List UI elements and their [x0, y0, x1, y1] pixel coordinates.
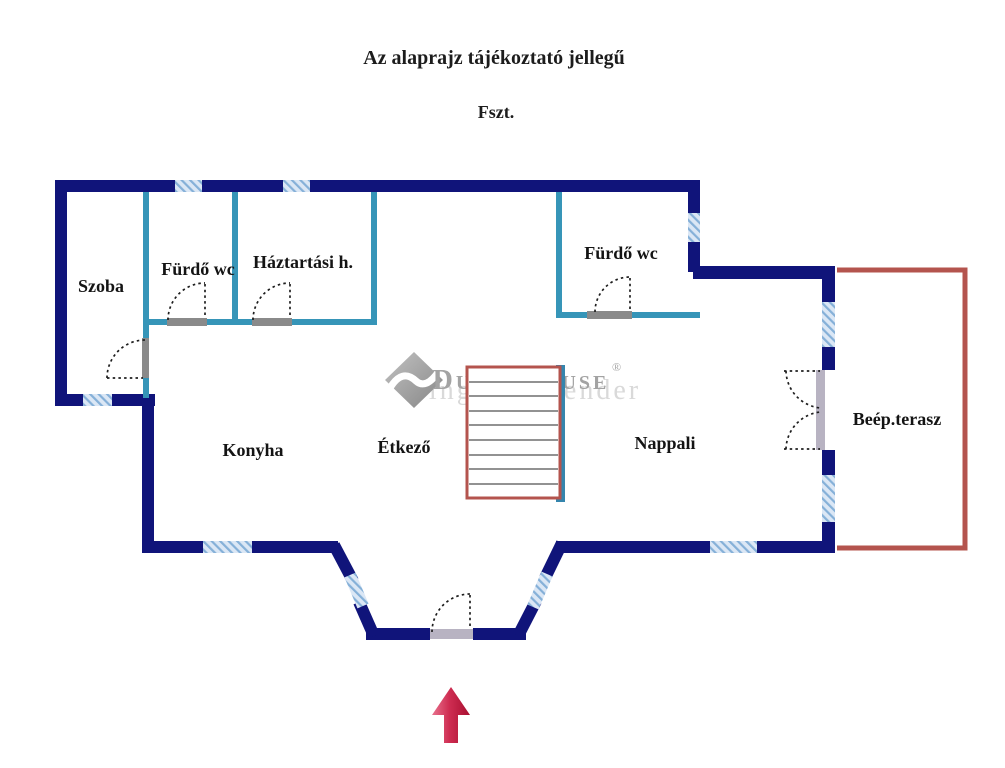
- wall-bottom-left-1: [142, 541, 203, 553]
- furdo-right-door: [595, 277, 630, 312]
- wall-diag-left-b: [359, 602, 374, 636]
- window-nappali-bottom: [710, 541, 757, 553]
- label-terasz: Beép.terasz: [853, 409, 941, 429]
- wall-east-2: [822, 347, 835, 370]
- wall-furdo-right-bottom-1: [556, 312, 587, 318]
- window-top-2: [283, 180, 310, 192]
- window-east-lower: [822, 475, 835, 522]
- wall-interior-bottom-1: [143, 319, 168, 325]
- disclaimer-title: Az alaprajz tájékoztató jellegű: [363, 47, 625, 69]
- wall-top-2: [202, 180, 283, 192]
- entrance-door: [432, 594, 470, 632]
- furdo-left-door: [168, 283, 205, 320]
- szoba-door: [107, 340, 145, 378]
- threshold-furdo-left-door: [167, 318, 207, 326]
- window-bathroom-right: [688, 213, 700, 242]
- wall-bottom-right-1: [556, 541, 710, 553]
- wall-top-1: [55, 180, 175, 192]
- threshold-terrace-door: [816, 370, 825, 450]
- window-east-upper: [822, 302, 835, 347]
- window-szoba: [83, 394, 112, 406]
- label-furdo-wc-left: Fürdő wc: [161, 259, 235, 279]
- entrance-arrow-icon: [432, 687, 470, 743]
- label-szoba: Szoba: [78, 276, 124, 296]
- wall-top-3: [310, 180, 700, 192]
- wall-left: [55, 180, 67, 406]
- wall-east-4: [822, 522, 835, 553]
- window-top-1: [175, 180, 202, 192]
- window-bay-left: [350, 575, 363, 606]
- label-haztartasi: Háztartási h.: [253, 252, 353, 272]
- haztartasi-door: [253, 283, 290, 320]
- wall-upper-right-horizontal: [693, 266, 835, 279]
- door-swings: [107, 277, 821, 632]
- wall-east-3: [822, 450, 835, 475]
- wall-szoba-right-upper: [143, 192, 149, 338]
- wall-bathroom-right-2: [688, 242, 700, 272]
- label-furdo-wc-right: Fürdő wc: [584, 243, 658, 263]
- threshold-furdo-right-door: [587, 311, 632, 319]
- wall-bathroom-right-1: [688, 180, 700, 213]
- terrace-double-door: [784, 371, 821, 449]
- wall-szoba-right-lower: [143, 378, 149, 398]
- threshold-haztartasi-door: [252, 318, 292, 326]
- threshold-entrance-door: [430, 629, 473, 639]
- stairs-outline: [467, 367, 560, 498]
- wall-konyha-left: [142, 394, 154, 553]
- wall-haztartasi-right: [371, 192, 377, 325]
- label-etkezo: Étkező: [378, 436, 431, 457]
- exterior-walls: [55, 180, 835, 640]
- window-konyha: [203, 541, 252, 553]
- label-nappali: Nappali: [634, 433, 695, 453]
- wall-interior-bottom-3: [292, 319, 377, 325]
- floorplan-page: Az alaprajz tájékoztató jellegű Fszt. in…: [0, 0, 1005, 768]
- wall-szoba-bottom-1: [55, 394, 83, 406]
- wall-diag-right-b: [545, 543, 562, 578]
- label-konyha: Konyha: [222, 440, 283, 460]
- threshold-szoba-door: [142, 338, 149, 378]
- stairs: [467, 367, 560, 498]
- floor-label: Fszt.: [478, 102, 514, 122]
- wall-furdo-right-bottom-2: [632, 312, 700, 318]
- floorplan-drawing: Az alaprajz tájékoztató jellegű Fszt. in…: [0, 0, 1005, 768]
- wall-interior-bottom-2: [207, 319, 252, 325]
- watermark-registered-mark: ®: [612, 360, 621, 374]
- window-bay-right: [533, 574, 547, 607]
- bay-diagonal-walls: [334, 543, 562, 636]
- wall-bottom-left-2: [252, 541, 338, 553]
- wall-furdo-right-left: [556, 192, 562, 318]
